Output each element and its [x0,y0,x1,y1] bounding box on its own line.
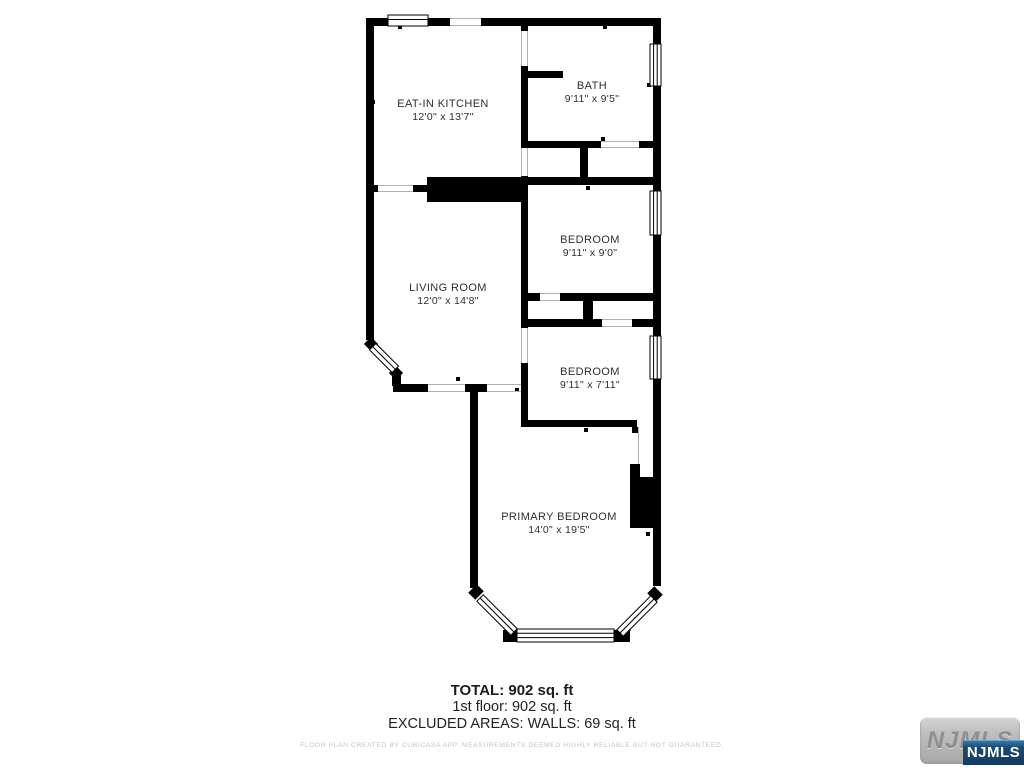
room-name: PRIMARY BEDROOM [501,511,617,524]
room-dimensions: 14'0" x 19'5" [501,524,617,537]
room-dimensions: 12'0" x 13'7" [397,111,489,124]
room-label-bedroom-1: BEDROOM 9'11" x 9'0" [560,234,620,260]
room-label-eat-in-kitchen: EAT-IN KITCHEN 12'0" x 13'7" [397,98,489,124]
total-area-text: TOTAL: 902 sq. ft [0,682,1024,699]
excluded-area-text: EXCLUDED AREAS: WALLS: 69 sq. ft [0,717,1024,733]
room-dimensions: 9'11" x 9'5" [565,93,620,106]
njmls-logo: NJMLS [963,740,1024,765]
room-label-primary-bedroom: PRIMARY BEDROOM 14'0" x 19'5" [501,511,617,537]
room-dimensions: 9'11" x 7'11" [560,379,620,392]
room-dimensions: 9'11" x 9'0" [560,247,620,260]
disclaimer-text: FLOOR PLAN CREATED BY CUBICASA APP. MEAS… [0,742,1024,749]
floor-plan-page: EAT-IN KITCHEN 12'0" x 13'7" BATH 9'11" … [0,0,1024,768]
room-label-bedroom-2: BEDROOM 9'11" x 7'11" [560,366,620,392]
area-summary: TOTAL: 902 sq. ft 1st floor: 902 sq. ft … [0,682,1024,732]
room-name: BEDROOM [560,366,620,379]
room-label-bath: BATH 9'11" x 9'5" [565,80,620,106]
room-name: BEDROOM [560,234,620,247]
room-label-living-room: LIVING ROOM 12'0" x 14'8" [409,282,487,308]
floor-area-text: 1st floor: 902 sq. ft [0,700,1024,716]
njmls-logo-label: NJMLS [967,744,1020,761]
floor-plan-drawing [0,0,1024,768]
room-name: BATH [565,80,620,93]
room-name: LIVING ROOM [409,282,487,295]
room-name: EAT-IN KITCHEN [397,98,489,111]
room-dimensions: 12'0" x 14'8" [409,295,487,308]
